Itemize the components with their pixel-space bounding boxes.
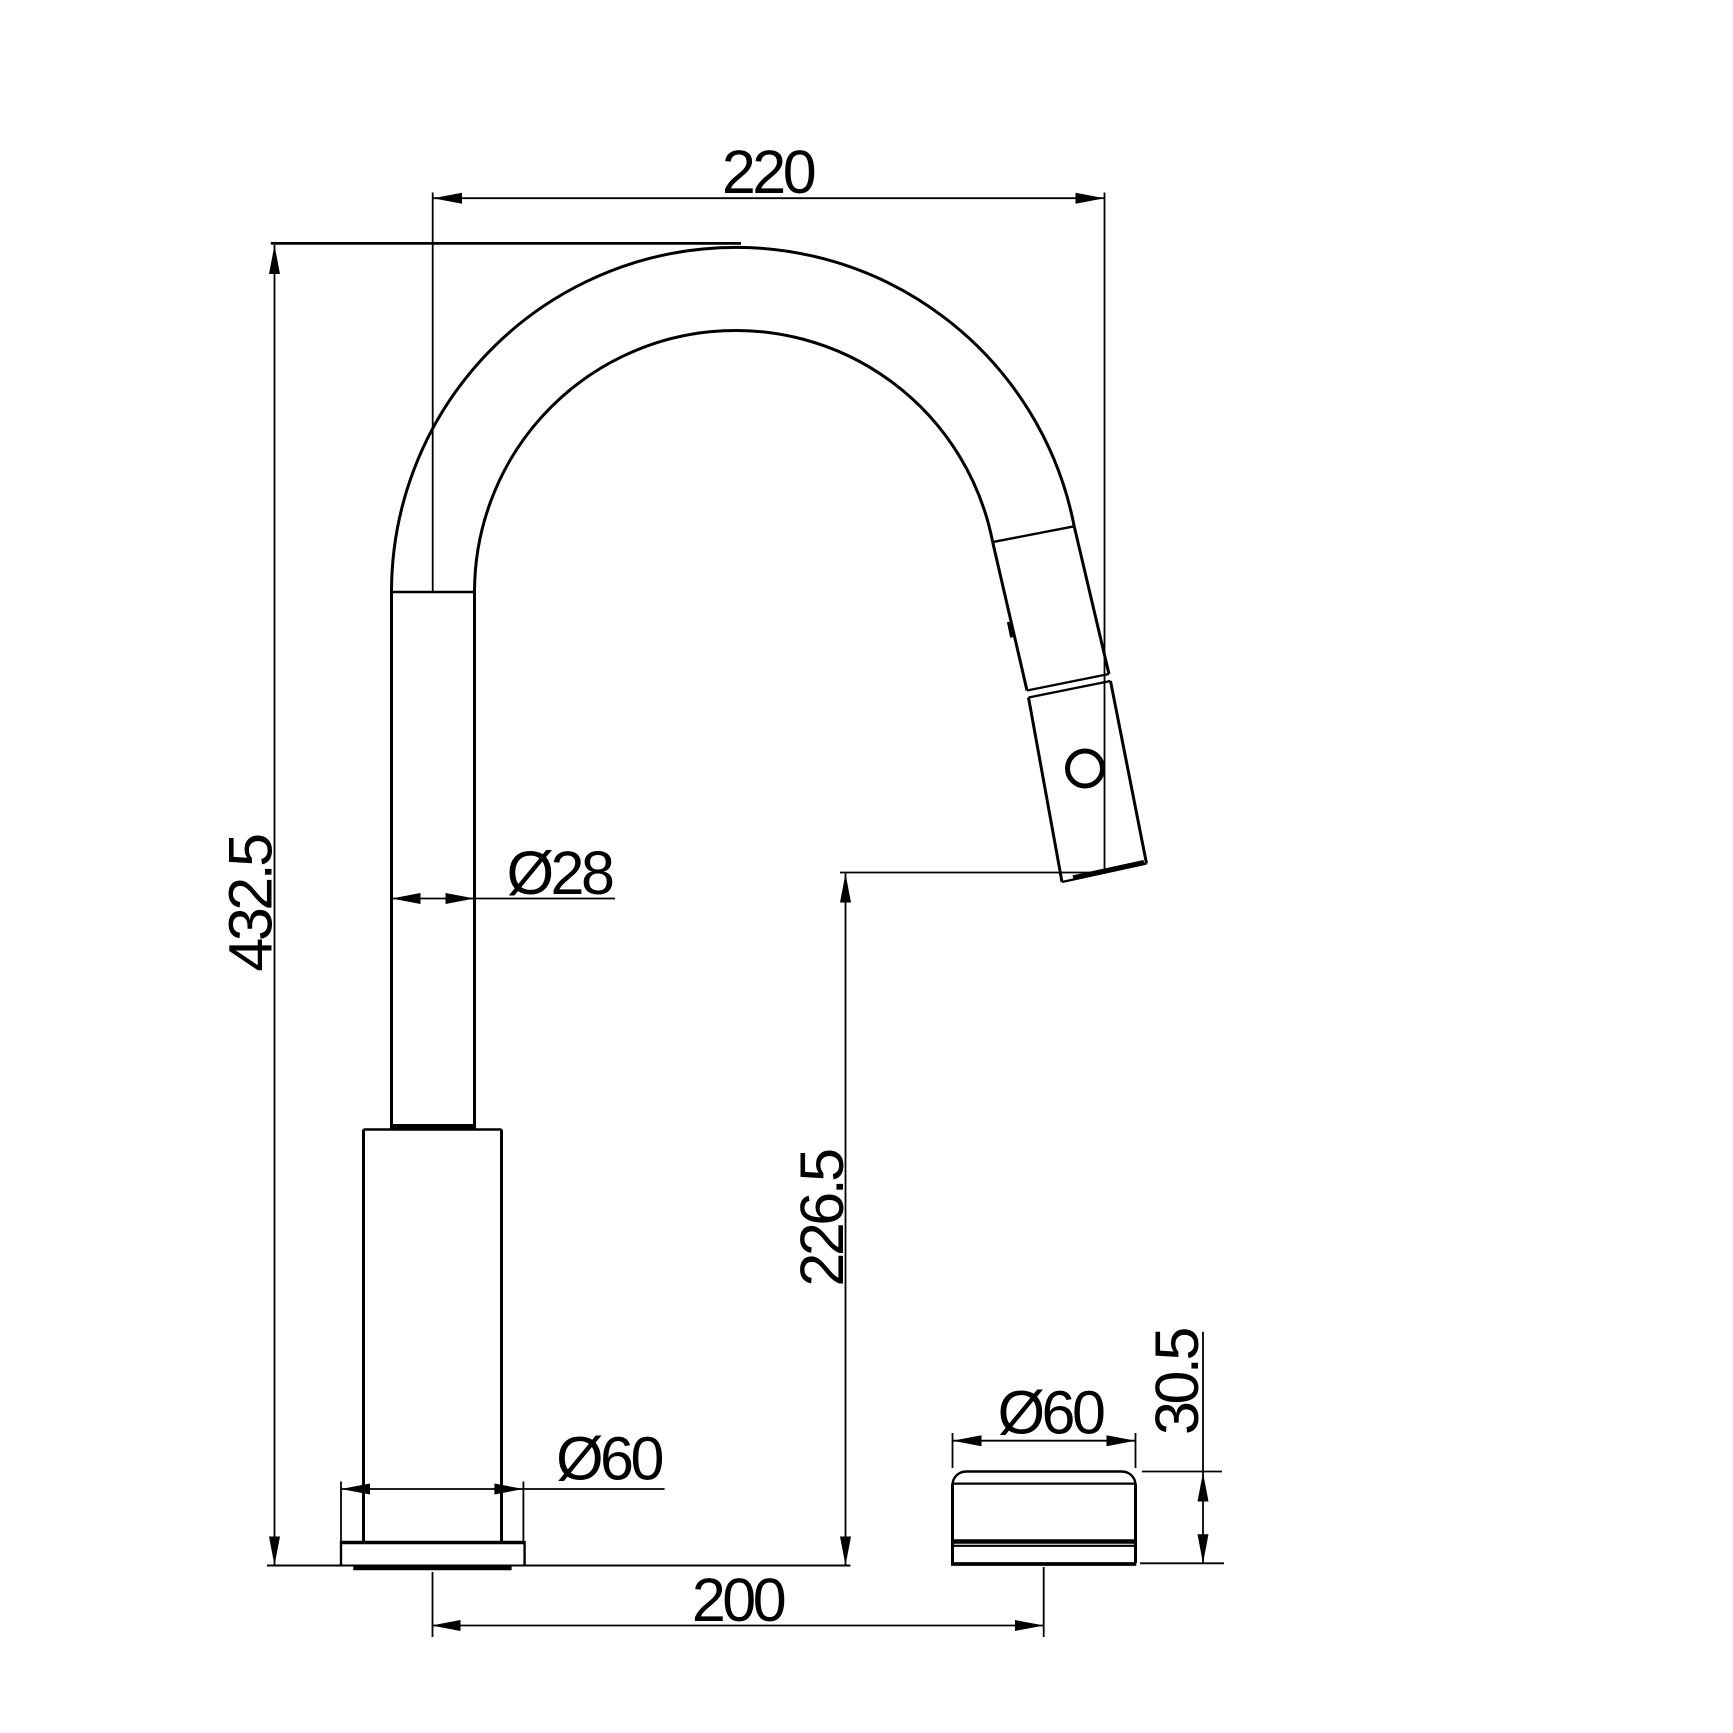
svg-text:Ø28: Ø28 <box>507 839 613 907</box>
svg-text:Ø60: Ø60 <box>998 1379 1104 1447</box>
svg-text:30.5: 30.5 <box>1143 1329 1211 1435</box>
svg-text:220: 220 <box>722 138 815 206</box>
svg-text:200: 200 <box>692 1566 785 1634</box>
svg-text:226.5: 226.5 <box>788 1150 856 1287</box>
svg-text:Ø60: Ø60 <box>556 1425 662 1493</box>
svg-text:432.5: 432.5 <box>217 835 285 972</box>
